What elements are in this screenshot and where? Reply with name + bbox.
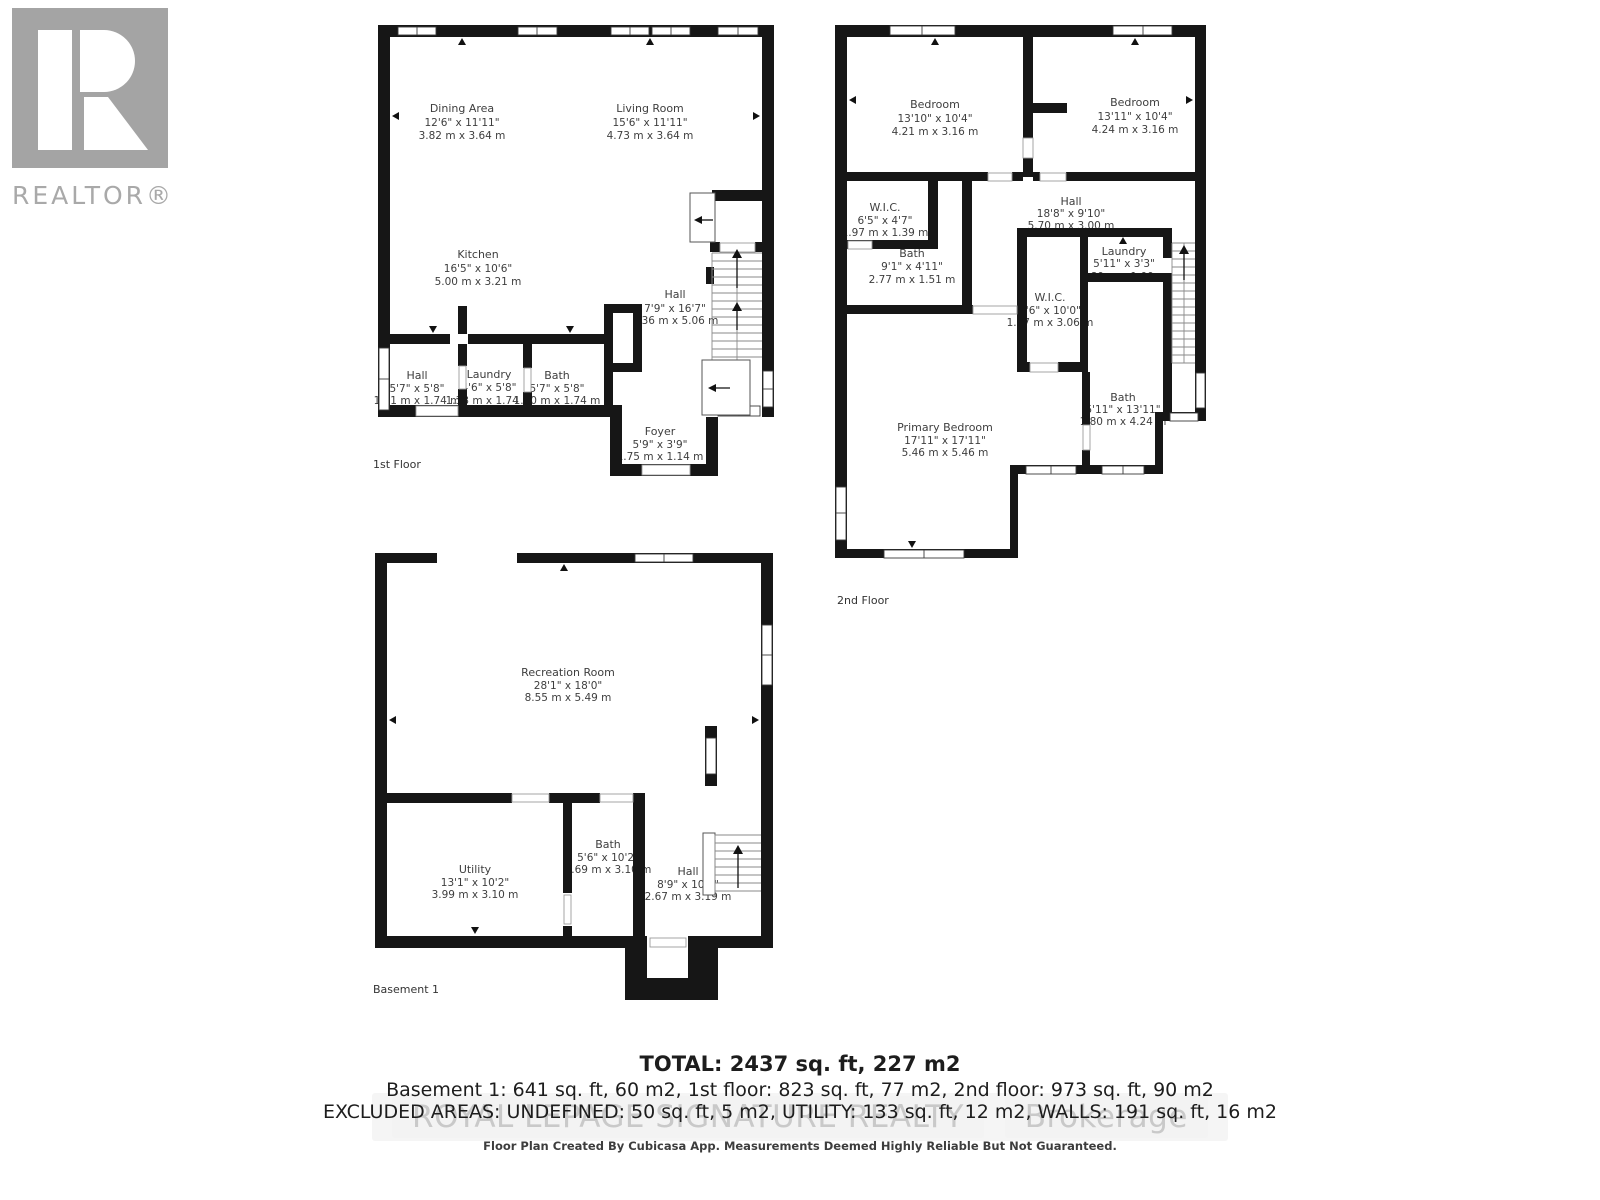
dimension-tick-icon xyxy=(908,541,916,548)
room-label-metric: 1.97 m x 1.39 m xyxy=(842,227,929,239)
dimension-tick-icon xyxy=(1119,237,1127,244)
floor-caption: Basement 1 xyxy=(373,983,439,996)
wall-segment xyxy=(549,793,600,803)
summary-excluded-areas: EXCLUDED AREAS: UNDEFINED: 50 sq. ft, 5 … xyxy=(0,1101,1600,1123)
room-label-metric: 3.99 m x 3.10 m xyxy=(432,889,519,901)
room-label-imperial: 4'6" x 10'0" xyxy=(1019,305,1081,317)
wall-segment xyxy=(375,936,625,948)
room-label-name: W.I.C. xyxy=(1034,291,1065,304)
room-label-name: Bedroom xyxy=(1110,96,1160,109)
wall-segment xyxy=(762,25,774,417)
realtor-r-bar xyxy=(38,30,72,150)
window xyxy=(1113,26,1172,35)
room-label-imperial: 18'8" x 9'10" xyxy=(1037,208,1105,220)
floor-plan-first: Dining Area 12'6" x 11'11" 3.82 m x 3.64… xyxy=(373,25,774,476)
room-label-name: W.I.C. xyxy=(869,201,900,214)
wall-segment xyxy=(710,242,720,252)
room-label-imperial: 12'6" x 11'11" xyxy=(424,117,499,129)
floor-caption: 1st Floor xyxy=(373,458,421,471)
room-label-imperial: 5'7" x 5'8" xyxy=(389,383,444,395)
wall-segment xyxy=(378,405,622,417)
room-label-imperial: 16'5" x 10'6" xyxy=(444,263,512,275)
wall-segment xyxy=(1195,25,1206,421)
entry-door-opening xyxy=(650,938,686,947)
second-floor-stairs xyxy=(1172,243,1195,363)
wall-segment xyxy=(1010,465,1018,558)
room-label-name: Recreation Room xyxy=(521,666,615,679)
room-label-name: Hall xyxy=(664,288,685,301)
room-label-name: Hall xyxy=(677,865,698,878)
door-opening xyxy=(973,306,1017,314)
stair-landing xyxy=(690,193,715,242)
door-opening xyxy=(848,241,872,249)
room-label-name: Bath xyxy=(1110,391,1136,404)
door-opening xyxy=(600,794,633,802)
room-label-imperial: 5'6" x 10'2" xyxy=(577,852,639,864)
room-label-imperial: 7'9" x 16'7" xyxy=(644,303,706,315)
wall-segment xyxy=(1017,362,1030,372)
room-label-imperial: 9'1" x 4'11" xyxy=(881,261,943,273)
room-label-name: Living Room xyxy=(616,102,684,115)
wall-segment xyxy=(718,936,773,948)
wall-segment xyxy=(523,392,532,405)
stair-rail xyxy=(703,833,715,895)
wall-segment xyxy=(1023,158,1033,177)
door-opening xyxy=(1040,173,1066,181)
wall-segment xyxy=(706,267,714,284)
window xyxy=(518,27,557,35)
wall-segment xyxy=(1163,228,1172,258)
room-label-metric: 2.67 m x 3.19 m xyxy=(645,891,732,903)
wall-segment xyxy=(468,334,606,344)
wall-segment xyxy=(523,344,532,368)
wall-segment xyxy=(1082,372,1090,425)
door-opening xyxy=(416,406,458,416)
door-opening xyxy=(459,366,466,389)
wall-segment xyxy=(633,793,645,803)
room-label-metric: 4.21 m x 3.16 m xyxy=(892,126,979,138)
wall-segment xyxy=(761,553,773,948)
dimension-tick-icon xyxy=(753,112,760,120)
door-opening xyxy=(1030,363,1058,372)
first-floor-dimension-ticks xyxy=(392,38,760,333)
room-label-name: Hall xyxy=(1060,195,1081,208)
window xyxy=(836,487,846,540)
wall-segment xyxy=(378,334,450,344)
wall-segment xyxy=(835,25,847,558)
dimension-tick-icon xyxy=(392,112,399,120)
room-label-metric: 5.00 m x 3.21 m xyxy=(435,276,522,288)
room-label-metric: 1.75 m x 1.14 m xyxy=(617,451,704,463)
door-opening xyxy=(1083,425,1090,450)
summary-total: TOTAL: 2437 sq. ft, 227 m2 xyxy=(0,1052,1600,1076)
basement-stairs xyxy=(703,833,761,895)
room-label-imperial: 13'11" x 10'4" xyxy=(1097,111,1172,123)
dimension-tick-icon xyxy=(849,96,856,104)
wall-segment xyxy=(1017,228,1172,237)
wall-segment xyxy=(962,181,972,314)
dimension-tick-icon xyxy=(560,564,568,571)
room-label-imperial: 13'1" x 10'2" xyxy=(441,877,509,889)
room-label-name: Dining Area xyxy=(430,102,494,115)
room-label-name: Kitchen xyxy=(457,248,498,261)
room-label-name: Bath xyxy=(595,838,621,851)
window xyxy=(1170,413,1198,421)
room-label-imperial: 5'9" x 3'9" xyxy=(632,439,687,451)
room-label-metric: 8.55 m x 5.49 m xyxy=(525,692,612,704)
disclaimer-text: Floor Plan Created By Cubicasa App. Meas… xyxy=(0,1139,1600,1153)
basement-walls xyxy=(375,553,773,1000)
wall-segment xyxy=(458,389,467,405)
wall-segment xyxy=(1017,228,1027,372)
room-label-metric: 2.36 m x 5.06 m xyxy=(632,315,719,327)
dimension-tick-icon xyxy=(752,716,759,724)
dimension-tick-icon xyxy=(429,326,437,333)
room-label-imperial: 5'7" x 5'8" xyxy=(529,383,584,395)
room-label-name: Bath xyxy=(544,369,570,382)
dimension-tick-icon xyxy=(646,38,654,45)
dimension-tick-icon xyxy=(471,927,479,934)
room-label-imperial: 28'1" x 18'0" xyxy=(534,680,602,692)
wall-segment xyxy=(1087,273,1172,282)
wall-segment xyxy=(706,417,718,476)
realtor-logo-icon: REALTOR® xyxy=(12,8,174,210)
room-label-metric: 3.82 m x 3.64 m xyxy=(419,130,506,142)
wall-segment xyxy=(1033,103,1067,113)
wall-segment xyxy=(387,793,512,803)
stair-arrowhead-icon xyxy=(733,845,743,854)
window xyxy=(706,738,716,774)
window xyxy=(890,26,955,35)
wall-segment xyxy=(1163,282,1172,420)
room-label-name: Laundry xyxy=(467,368,512,381)
room-label-metric: 4.24 m x 3.16 m xyxy=(1092,124,1179,136)
room-label-metric: 4.73 m x 3.64 m xyxy=(607,130,694,142)
window xyxy=(1196,373,1205,408)
room-label-name: Laundry xyxy=(1102,245,1147,258)
wall-segment xyxy=(835,305,973,314)
door-opening xyxy=(512,794,549,802)
summary-floor-areas: Basement 1: 641 sq. ft, 60 m2, 1st floor… xyxy=(0,1079,1600,1101)
door-opening xyxy=(988,173,1012,181)
wall-segment xyxy=(928,181,938,249)
room-label-name: Foyer xyxy=(645,425,676,438)
door-opening xyxy=(1023,138,1033,158)
room-label-name: Hall xyxy=(406,369,427,382)
door-opening xyxy=(564,895,571,924)
room-label-imperial: 15'6" x 11'11" xyxy=(612,117,687,129)
wall-segment xyxy=(458,344,467,366)
room-label-metric: 1.80 m x 4.24 m xyxy=(1080,416,1167,428)
room-label-imperial: 5'11" x 13'11" xyxy=(1085,404,1160,416)
floor-caption: 2nd Floor xyxy=(837,594,889,607)
dimension-tick-icon xyxy=(1186,96,1193,104)
floor-plan-second: Bedroom 13'10" x 10'4" 4.21 m x 3.16 m B… xyxy=(835,25,1206,607)
room-label-imperial: 13'10" x 10'4" xyxy=(897,113,972,125)
wall-segment xyxy=(1155,412,1163,473)
closet-interior xyxy=(613,313,633,363)
wall-segment xyxy=(1080,228,1088,372)
wall-segment xyxy=(378,25,774,37)
floor-plan-canvas: REALTOR® Dining Area 12'6" x 11'11" 3.82… xyxy=(0,0,1600,1055)
wall-segment xyxy=(712,190,774,201)
floor-plan-basement: Recreation Room 28'1" x 18'0" 8.55 m x 5… xyxy=(373,553,773,1000)
stair-arrowhead-icon xyxy=(732,302,742,311)
room-label-name: Primary Bedroom xyxy=(897,421,993,434)
floor-plan-page: REALTOR® Dining Area 12'6" x 11'11" 3.82… xyxy=(0,0,1600,1200)
room-label-metric: 5.46 m x 5.46 m xyxy=(902,447,989,459)
wall-segment xyxy=(458,306,467,334)
room-label-name: Utility xyxy=(459,863,492,876)
wall-segment xyxy=(835,172,988,181)
dimension-tick-icon xyxy=(1131,38,1139,45)
wall-segment xyxy=(1033,172,1040,181)
wall-segment xyxy=(375,553,387,948)
door-opening xyxy=(524,368,531,392)
dimension-tick-icon xyxy=(931,38,939,45)
dimension-tick-icon xyxy=(566,326,574,333)
room-label-imperial: 17'11" x 17'11" xyxy=(904,435,986,447)
stair-arrowhead-icon xyxy=(1179,245,1189,254)
dimension-tick-icon xyxy=(458,38,466,45)
room-label-imperial: 4'6" x 5'8" xyxy=(461,382,516,394)
room-label-metric: 2.77 m x 1.51 m xyxy=(869,274,956,286)
wall-segment xyxy=(633,803,645,936)
room-label-imperial: 5'11" x 3'3" xyxy=(1093,258,1155,270)
wall-segment xyxy=(1012,172,1023,181)
entry-nook-wall xyxy=(625,978,718,1000)
wall-segment xyxy=(1023,37,1033,138)
room-label-name: Bedroom xyxy=(910,98,960,111)
room-label-imperial: 6'5" x 4'7" xyxy=(857,215,912,227)
wall-segment xyxy=(563,803,572,893)
realtor-wordmark: REALTOR® xyxy=(12,181,174,210)
entry-door-opening xyxy=(642,465,690,475)
dimension-tick-icon xyxy=(389,716,396,724)
wall-segment xyxy=(1058,362,1088,372)
wall-segment xyxy=(755,242,763,252)
wall-segment xyxy=(563,926,572,936)
wall-segment xyxy=(1066,172,1206,181)
